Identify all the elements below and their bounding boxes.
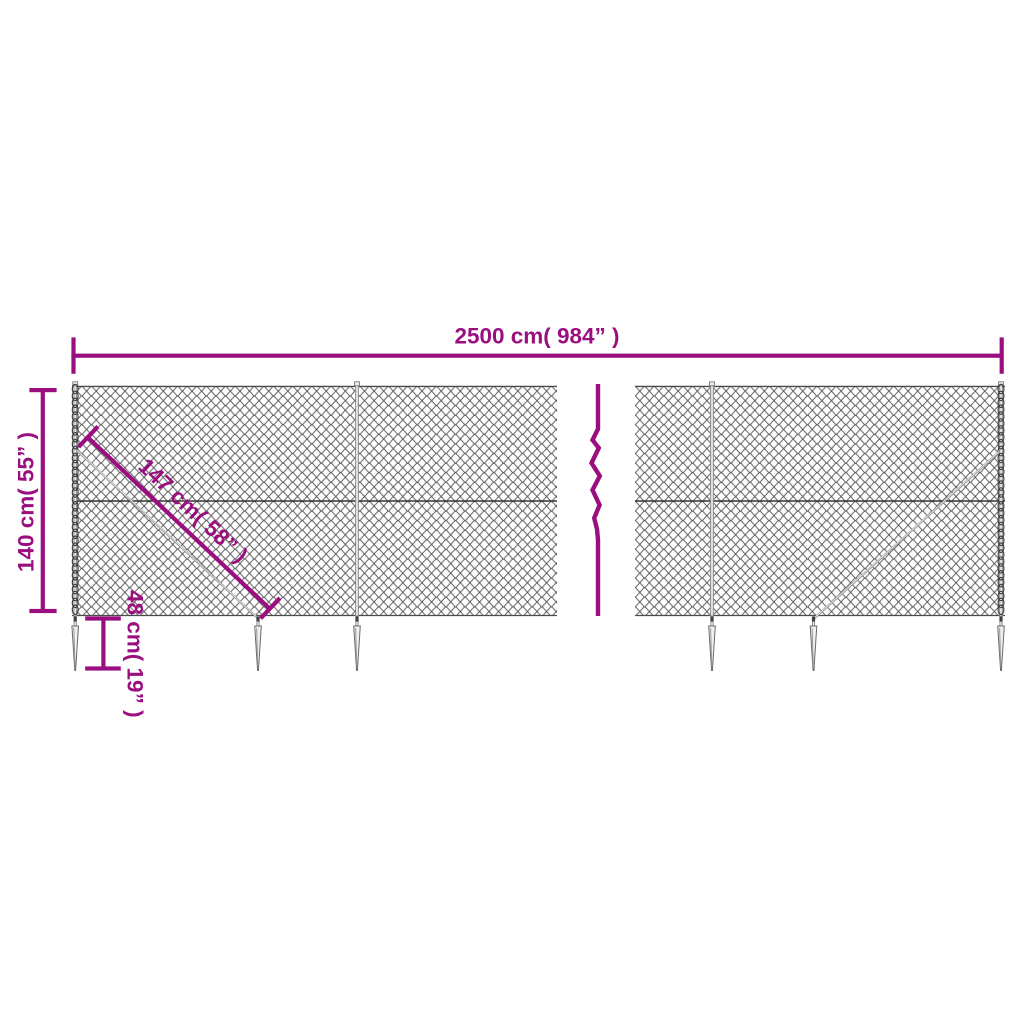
- svg-text:48 cm( 19” ): 48 cm( 19” ): [123, 590, 148, 718]
- svg-text:2500 cm( 984” ): 2500 cm( 984” ): [454, 324, 619, 349]
- svg-text:140 cm( 55” ): 140 cm( 55” ): [14, 432, 39, 572]
